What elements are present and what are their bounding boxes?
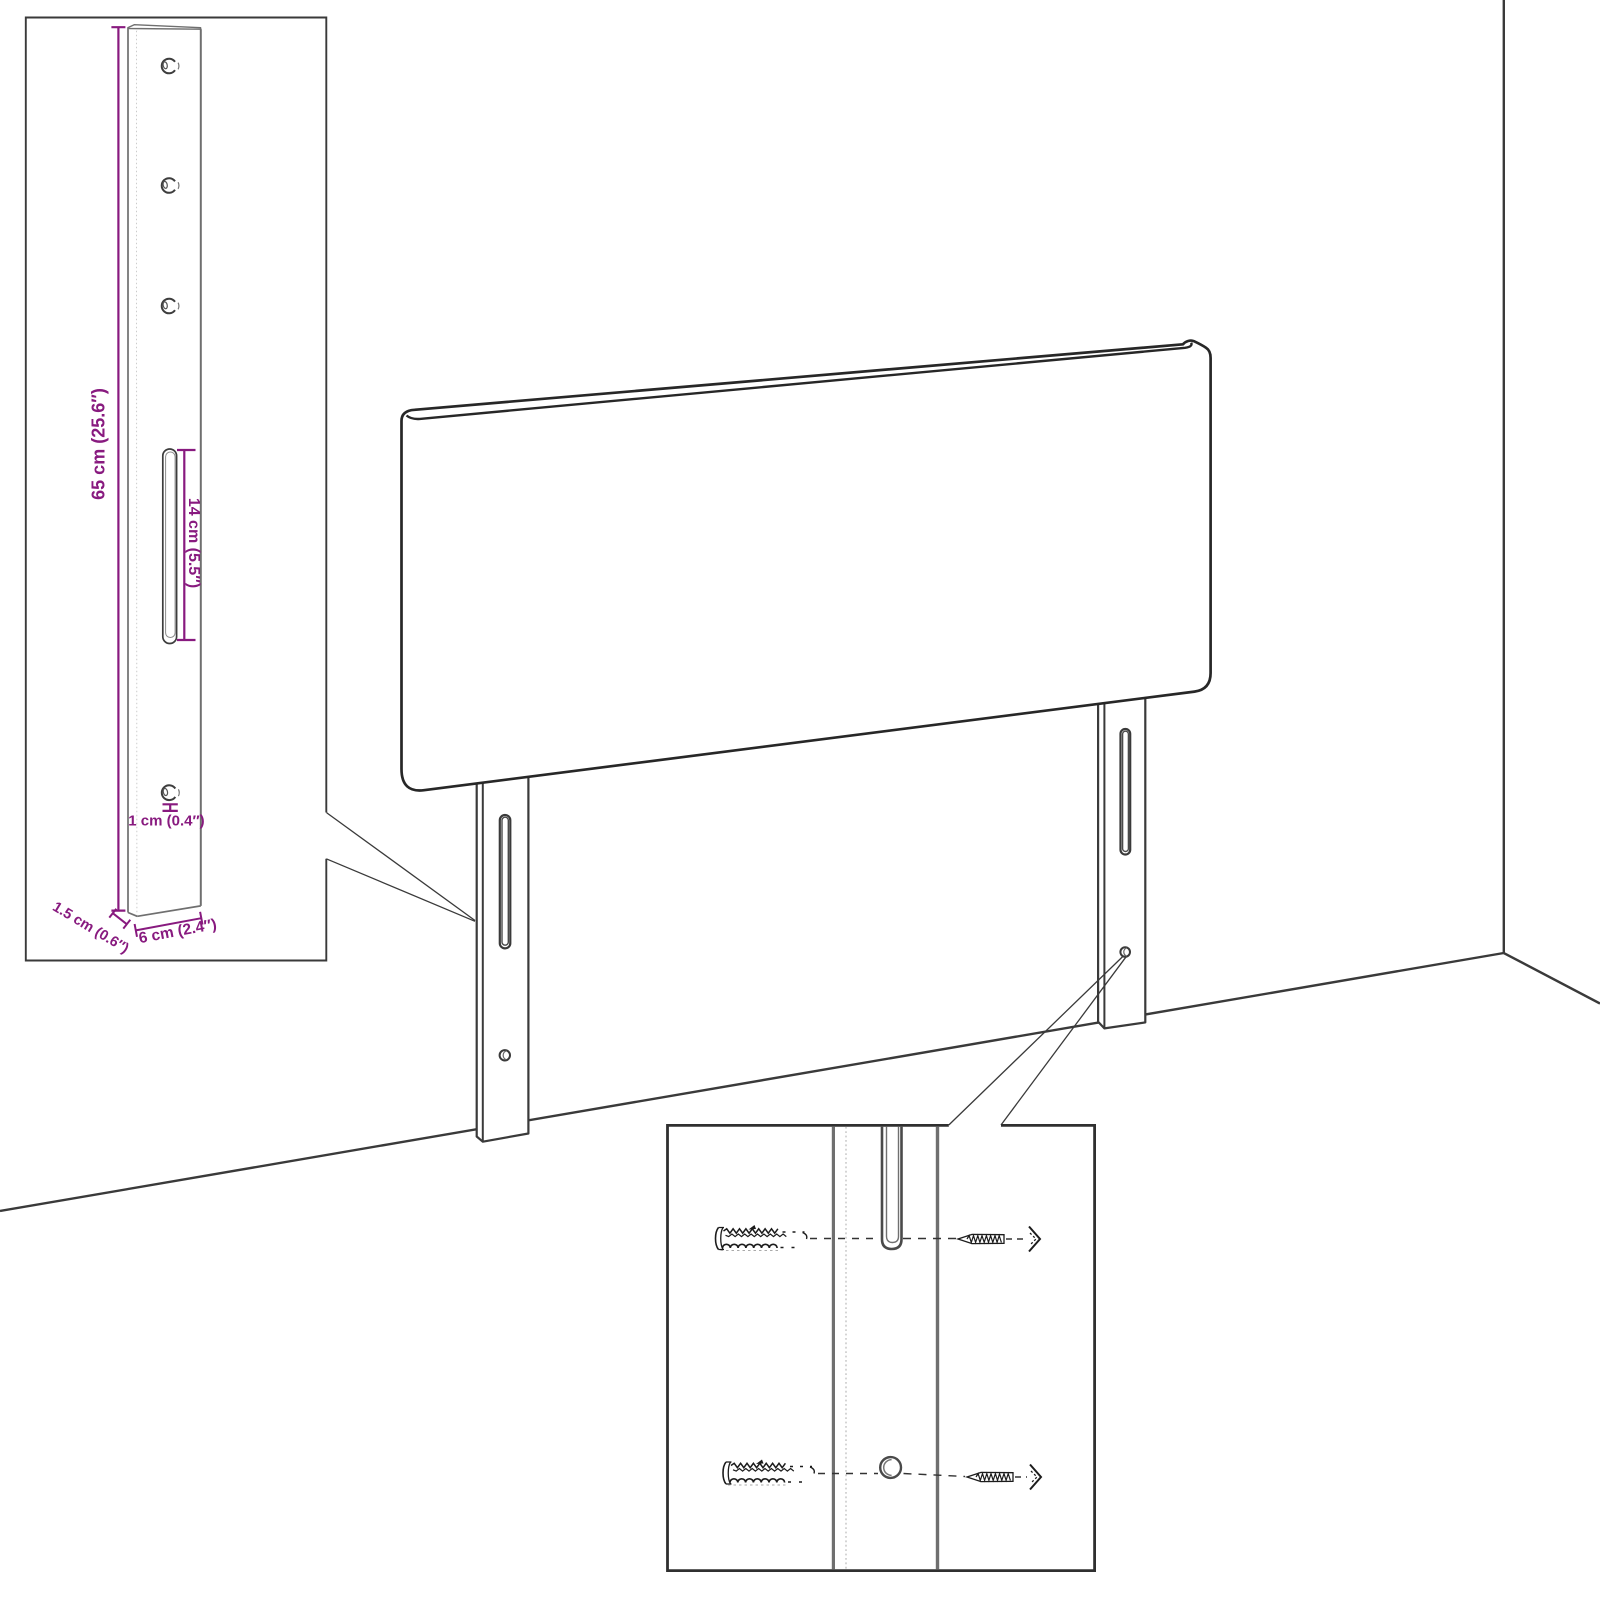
svg-text:1 cm (0.4″): 1 cm (0.4″) — [128, 813, 204, 830]
svg-text:65 cm (25.6″): 65 cm (25.6″) — [89, 388, 109, 500]
svg-text:14 cm (5.5″): 14 cm (5.5″) — [185, 498, 202, 588]
